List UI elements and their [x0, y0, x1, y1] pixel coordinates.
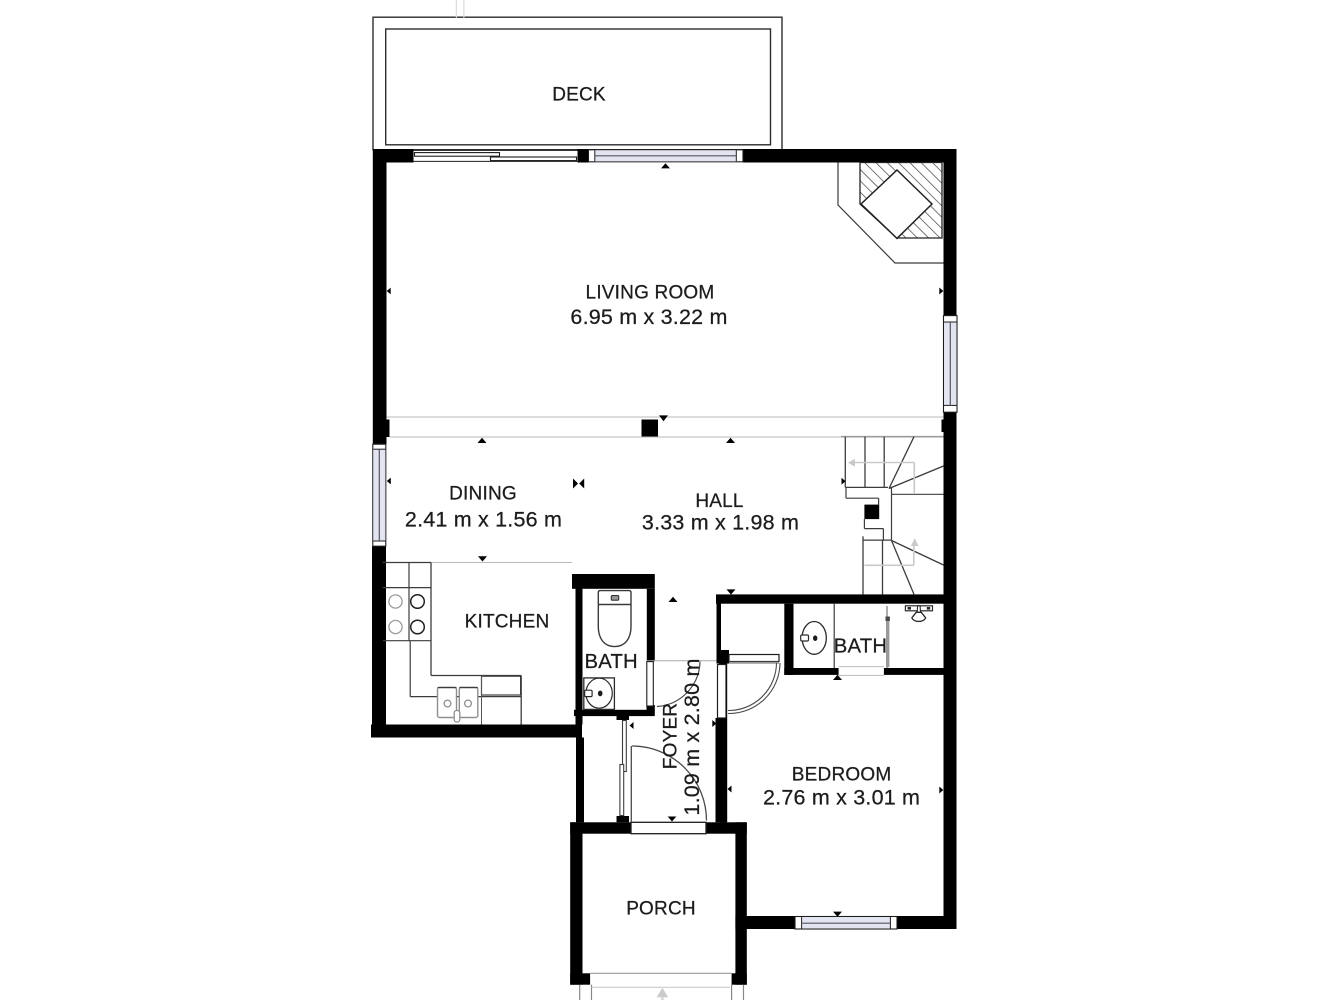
svg-text:HALL: HALL	[695, 491, 743, 512]
svg-text:BATH: BATH	[585, 651, 638, 673]
svg-text:3.33 m x 1.98 m: 3.33 m x 1.98 m	[642, 511, 799, 535]
svg-text:2.41 m x 1.56 m: 2.41 m x 1.56 m	[405, 508, 562, 532]
svg-text:6.95 m x 3.22 m: 6.95 m x 3.22 m	[570, 305, 727, 329]
svg-text:2.76 m x 3.01 m: 2.76 m x 3.01 m	[763, 785, 920, 809]
svg-text:1.09 m x 2.80 m: 1.09 m x 2.80 m	[680, 658, 704, 815]
svg-text:BEDROOM: BEDROOM	[792, 765, 892, 786]
svg-text:PORCH: PORCH	[626, 898, 696, 919]
svg-text:KITCHEN: KITCHEN	[465, 611, 550, 632]
svg-text:DECK: DECK	[552, 85, 606, 106]
svg-text:FOYER: FOYER	[661, 703, 682, 769]
svg-text:LIVING ROOM: LIVING ROOM	[586, 282, 715, 303]
svg-text:DINING: DINING	[449, 483, 517, 504]
svg-text:BATH: BATH	[834, 636, 887, 658]
